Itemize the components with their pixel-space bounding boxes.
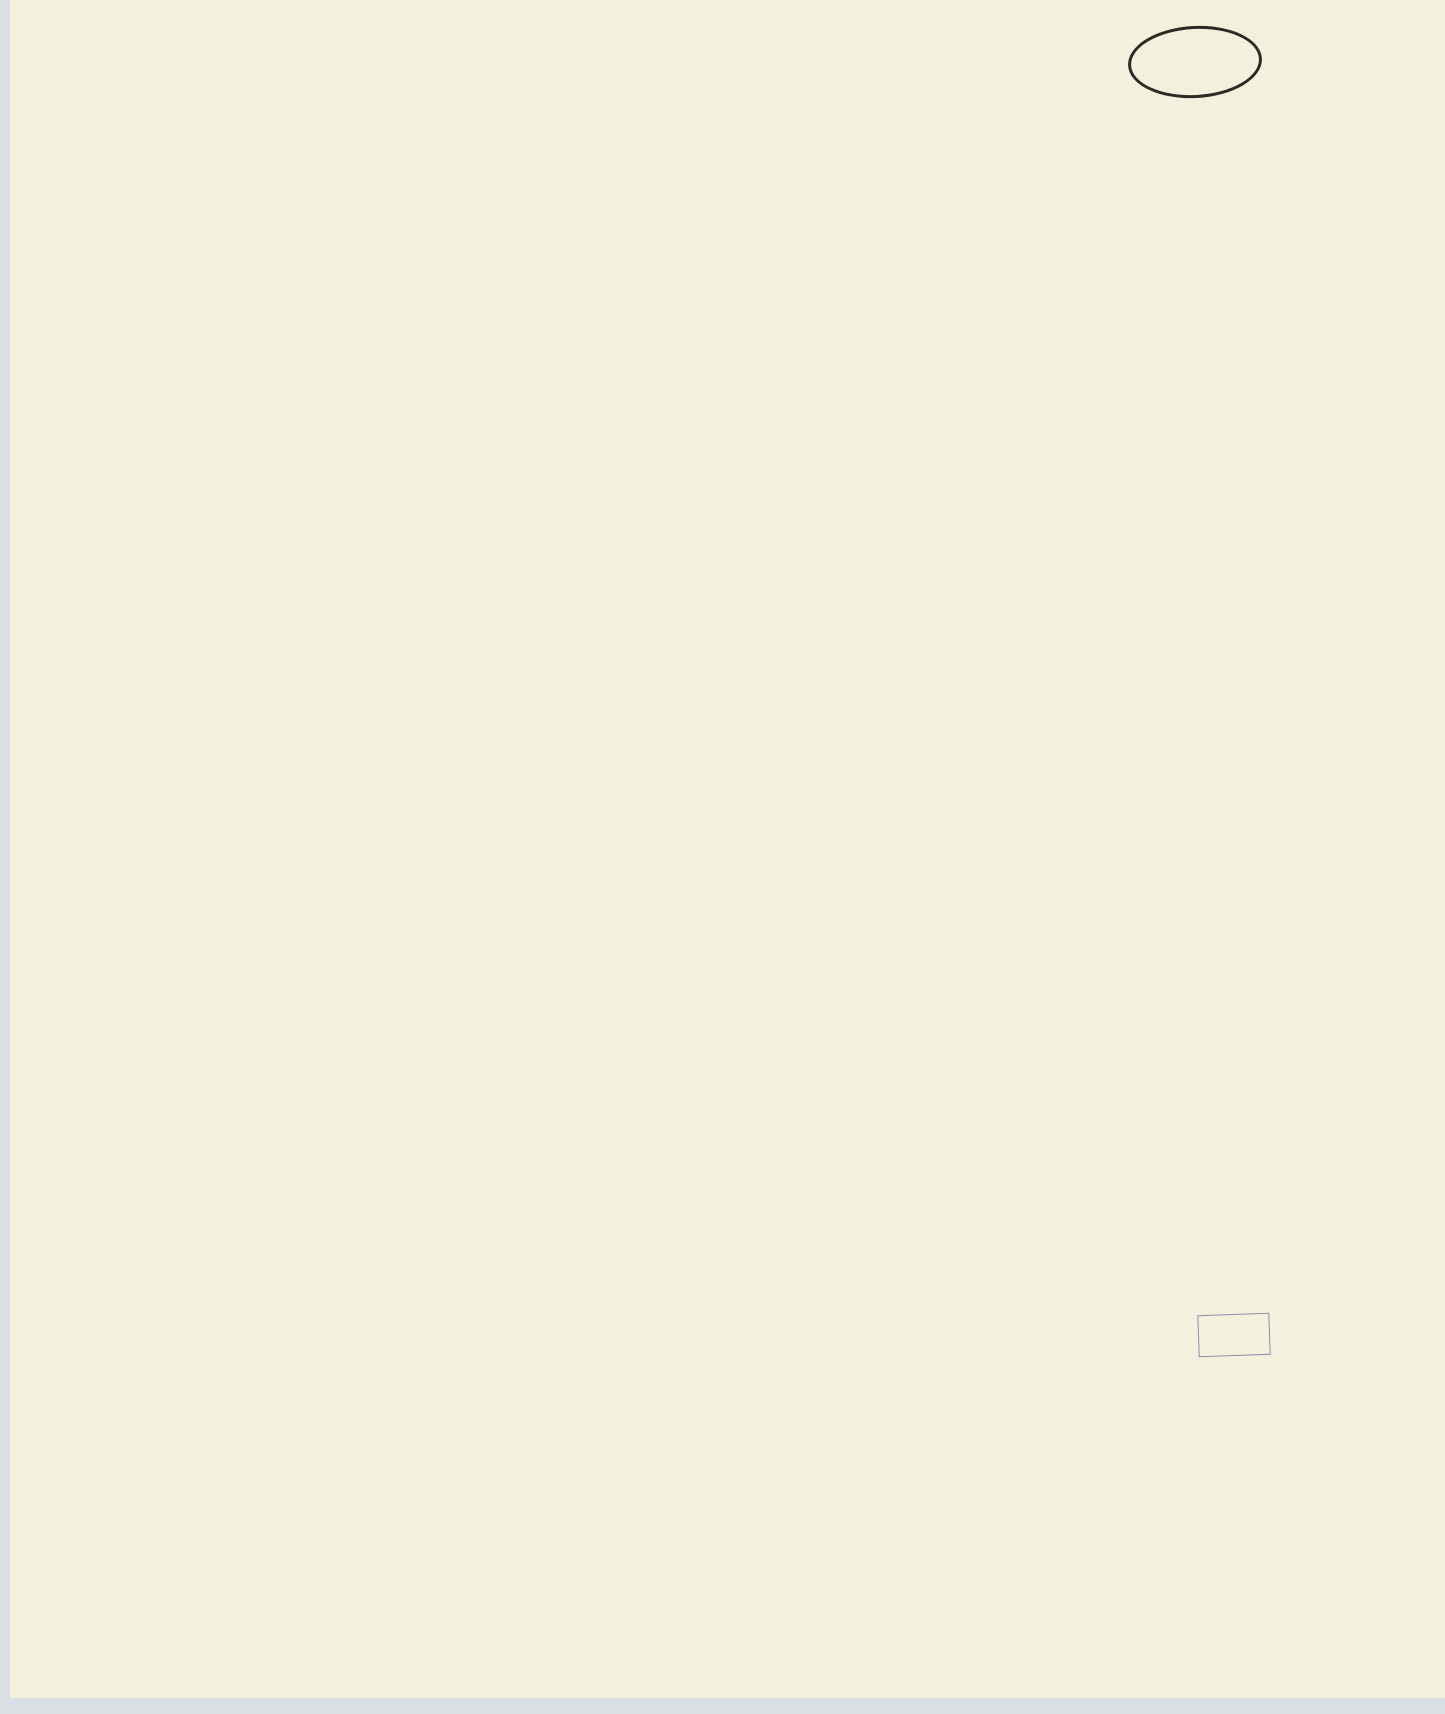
library-of-congress-stamp — [1197, 1313, 1270, 1357]
stamp-line-1 — [1198, 1319, 1268, 1321]
map-canvas — [0, 0, 1445, 1714]
sanborn-map-sheet — [0, 0, 1445, 1714]
stamp-line-2 — [1198, 1319, 1268, 1321]
stamp-line-3 — [1198, 1319, 1268, 1321]
